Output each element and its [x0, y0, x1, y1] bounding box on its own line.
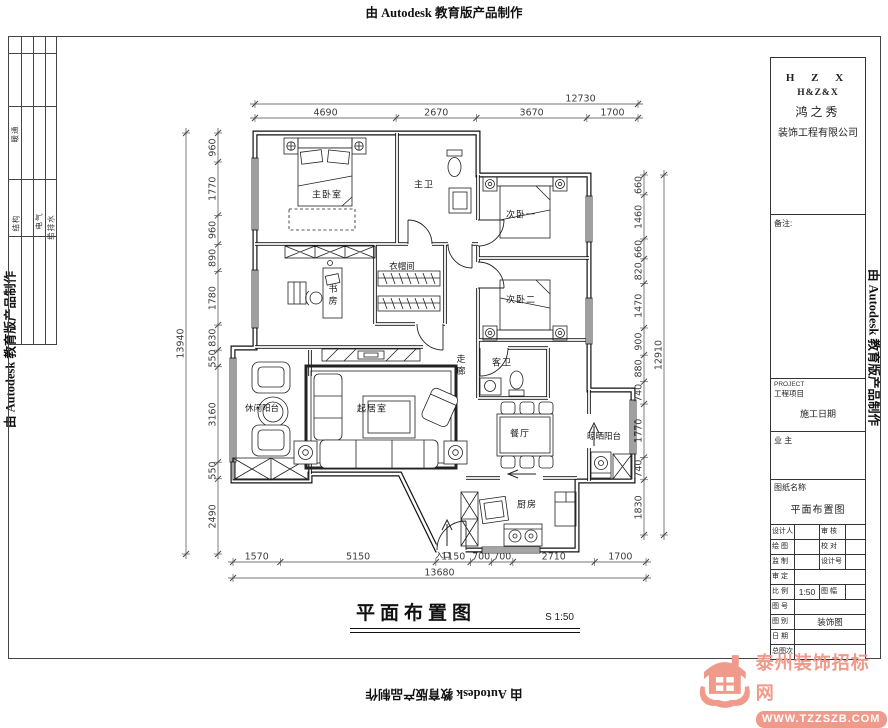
master-bath-fixtures — [447, 150, 471, 213]
room-label-corridor: 走廊 — [455, 354, 468, 378]
cloakroom-racks — [378, 271, 440, 311]
room-label-master-bath: 主卫 — [414, 178, 434, 191]
room-label-dining-room: 餐厅 — [510, 427, 530, 440]
room-label-living-room: 起居室 — [357, 402, 387, 415]
master-bed — [284, 138, 366, 230]
svg-text:1570: 1570 — [245, 552, 269, 563]
svg-text:1700: 1700 — [600, 108, 624, 119]
svg-text:550: 550 — [208, 349, 219, 367]
title-underline — [350, 628, 580, 633]
svg-text:740: 740 — [634, 384, 645, 402]
svg-text:1460: 1460 — [634, 205, 645, 229]
room-label-leisure-balcony: 休闲阳台 — [245, 402, 279, 414]
svg-text:13680: 13680 — [424, 568, 454, 579]
plan-title: 平面布置图 — [356, 598, 476, 625]
svg-text:700: 700 — [472, 552, 490, 563]
svg-text:2490: 2490 — [208, 504, 219, 528]
svg-text:3160: 3160 — [208, 402, 219, 426]
svg-text:960: 960 — [208, 138, 219, 156]
svg-text:12910: 12910 — [654, 340, 665, 370]
door-swings — [408, 220, 508, 550]
room-label-guest-bath: 客卫 — [492, 356, 512, 369]
room-label-master-bedroom: 主卧室 — [312, 188, 342, 201]
watermark-site-name: 泰州装饰招标网 — [756, 648, 888, 708]
svg-text:1470: 1470 — [634, 294, 645, 318]
svg-text:1780: 1780 — [208, 286, 219, 310]
room-label-cloakroom: 衣帽间 — [389, 260, 415, 272]
svg-text:12730: 12730 — [565, 94, 595, 105]
room-label-study: 书房 — [327, 284, 340, 308]
svg-text:550: 550 — [208, 461, 219, 479]
room-label-drying-balcony: 晾晒阳台 — [587, 430, 621, 442]
svg-text:880: 880 — [634, 359, 645, 377]
svg-text:660: 660 — [634, 176, 645, 194]
plan-scale: S 1:50 — [545, 612, 574, 625]
svg-text:830: 830 — [208, 329, 219, 347]
svg-text:1770: 1770 — [208, 177, 219, 201]
svg-text:1770: 1770 — [634, 419, 645, 443]
room-label-entrance: 入口 — [436, 550, 451, 561]
svg-text:13940: 13940 — [176, 328, 187, 358]
furniture — [252, 138, 611, 546]
svg-text:900: 900 — [634, 333, 645, 351]
svg-text:3670: 3670 — [520, 108, 544, 119]
svg-text:2670: 2670 — [424, 108, 448, 119]
washer — [591, 452, 611, 478]
site-watermark: 泰州装饰招标网 WWW.TZZSZB.COM — [696, 648, 888, 710]
svg-text:700: 700 — [493, 552, 511, 563]
svg-text:740: 740 — [634, 460, 645, 478]
svg-text:890: 890 — [208, 249, 219, 267]
svg-text:1830: 1830 — [634, 495, 645, 519]
svg-text:2710: 2710 — [542, 552, 566, 563]
svg-text:4690: 4690 — [313, 108, 337, 119]
room-label-kitchen: 厨房 — [517, 498, 537, 511]
dimension-lines: 4690267036701700127301570515011507007002… — [176, 94, 669, 583]
drawing-sheet: 由 Autodesk 教育版产品制作 由 Autodesk 教育版产品制作 由 … — [0, 0, 888, 710]
room-label-bedroom3: 次卧二 — [506, 293, 536, 306]
bedroom3-furniture — [483, 280, 567, 340]
plan-title-block: 平面布置图 S 1:50 — [350, 598, 580, 633]
svg-text:660: 660 — [634, 240, 645, 258]
guest-bath-fixtures — [480, 371, 524, 396]
svg-text:960: 960 — [208, 221, 219, 239]
svg-text:1700: 1700 — [608, 552, 632, 563]
room-label-bedroom2: 次卧一 — [506, 208, 536, 221]
svg-text:5150: 5150 — [346, 552, 370, 563]
svg-text:820: 820 — [634, 262, 645, 280]
watermark-logo-icon — [696, 648, 754, 710]
watermark-site-url: WWW.TZZSZB.COM — [756, 711, 887, 728]
